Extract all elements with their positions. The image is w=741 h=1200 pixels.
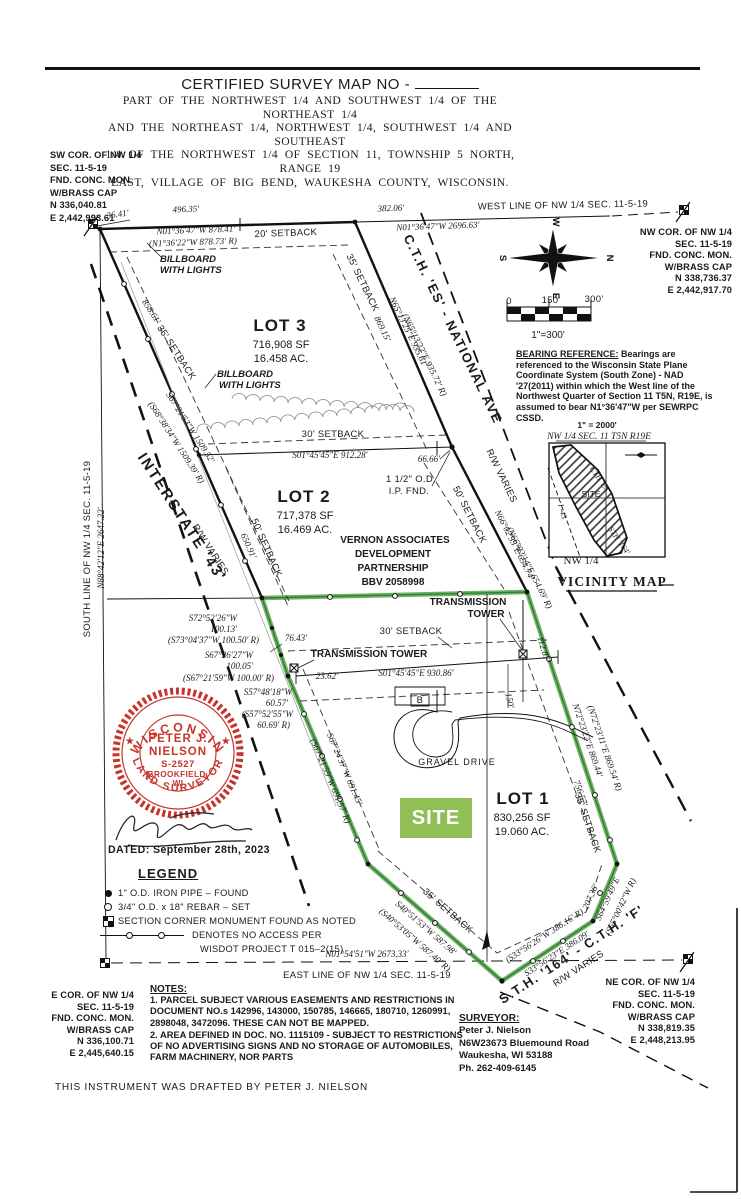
iron-pipe-found-icon bbox=[100, 890, 116, 897]
map-label: (N1°36'22"W 878.73' R) bbox=[149, 235, 237, 248]
corner-line: W/BRASS CAP bbox=[38, 1025, 134, 1037]
map-label: BILLBOARD bbox=[217, 369, 273, 380]
map-label: 717,378 SF bbox=[277, 510, 334, 522]
corner-line: NE COR. OF NW 1/4 bbox=[573, 977, 695, 989]
corner-line: SEC. 11-5-19 bbox=[50, 162, 180, 175]
top-rule bbox=[45, 67, 700, 70]
map-label: PARTNERSHIP bbox=[358, 563, 429, 574]
map-label: NW 1/4 bbox=[564, 555, 599, 567]
east-line-label: EAST LINE OF NW 1/4 SEC. 11-5-19 bbox=[283, 970, 451, 981]
surveyor-signature bbox=[116, 813, 252, 847]
map-label: N01°36'47"W 2696.63' bbox=[395, 220, 481, 233]
map-label: 1 1/2" O.D. bbox=[386, 474, 436, 485]
legend-item: DENOTES NO ACCESS PER bbox=[100, 928, 400, 942]
corner-block-sw: SW COR. OF NW 1/4SEC. 11-5-19FND. CONC. … bbox=[50, 149, 180, 225]
map-label: 150' bbox=[503, 692, 516, 710]
subtitle-line: AND THE NORTHEAST 1/4, NORTHWEST 1/4, SO… bbox=[95, 121, 525, 148]
map-label: 66.66' bbox=[418, 454, 441, 464]
no-access-line-icon bbox=[100, 935, 184, 936]
map-label: 100.13' bbox=[210, 624, 238, 634]
corner-line: SW COR. OF NW 1/4 bbox=[50, 149, 180, 162]
corner-line: E COR. OF NW 1/4 bbox=[38, 990, 134, 1002]
map-label: VERNON ASSOCIATES bbox=[340, 535, 450, 546]
map-label: 100.05' bbox=[226, 661, 254, 671]
map-label: 20' SETBACK bbox=[254, 227, 317, 240]
note-item: 2. AREA DEFINED IN DOC. NO. 1115109 - SU… bbox=[150, 1030, 470, 1064]
note-item: 1. PARCEL SUBJECT VARIOUS EASEMENTS AND … bbox=[150, 995, 470, 1029]
map-label: GRAVEL DRIVE bbox=[418, 757, 496, 767]
corner-line: W/BRASS CAP bbox=[610, 262, 732, 274]
surveyor-block: SURVEYOR: Peter J. NielsonN6W23673 Bluem… bbox=[459, 1013, 619, 1075]
compass-rose-icon bbox=[506, 228, 600, 288]
map-label: 16.469 AC. bbox=[278, 524, 332, 536]
map-label: N01°36'47"W 878.41' bbox=[155, 224, 236, 237]
legend-item-label: 1" O.D. IRON PIPE – FOUND bbox=[118, 888, 249, 898]
seal-city: BROOKFIELD, bbox=[148, 770, 209, 779]
map-label: 382.06' bbox=[376, 203, 405, 214]
map-label: S67°26'27"W bbox=[205, 650, 255, 660]
legend-item-label: WISDOT PROJECT T 015–2(15) bbox=[200, 944, 344, 954]
corner-line: SEC. 11-5-19 bbox=[573, 989, 695, 1001]
scale-tick: 0 bbox=[506, 296, 512, 307]
map-label: 30' SETBACK bbox=[380, 626, 443, 637]
compass-w: W bbox=[550, 218, 561, 227]
seal-star-left: ★ bbox=[125, 736, 134, 747]
surveyor-lines: Peter J. NielsonN6W23673 Bluemound RoadW… bbox=[459, 1025, 619, 1075]
map-label: B bbox=[417, 695, 424, 706]
legend-item-label: SECTION CORNER MONUMENT FOUND AS NOTED bbox=[118, 916, 356, 926]
drafted-line: THIS INSTRUMENT WAS DRAFTED BY PETER J. … bbox=[55, 1082, 368, 1093]
subtitle-line: PART OF THE NORTHWEST 1/4 AND SOUTHWEST … bbox=[95, 94, 525, 121]
map-label: WITH LIGHTS bbox=[160, 265, 222, 276]
map-label: 16.458 AC. bbox=[254, 353, 308, 365]
map-label: (S73°04'37"W 100.50' R) bbox=[168, 635, 259, 645]
site-badge-label: SITE bbox=[412, 807, 460, 830]
west-line-label: WEST LINE OF NW 1/4 SEC. 11-5-19 bbox=[478, 199, 648, 213]
surveyor-line: Peter J. Nielson bbox=[459, 1025, 619, 1037]
dated-line: DATED: September 28th, 2023 bbox=[108, 844, 270, 856]
legend-item: SECTION CORNER MONUMENT FOUND AS NOTED bbox=[100, 914, 400, 928]
corner-line: N 336,100.71 bbox=[38, 1036, 134, 1048]
legend-item: 3/4" O.D. x 18" REBAR – SET bbox=[100, 900, 400, 914]
map-label: 23.62' bbox=[316, 671, 339, 681]
map-label: S57°48'18"W bbox=[244, 687, 294, 697]
map-label: S01°45'45"E 912.28' bbox=[292, 450, 368, 460]
scale-tick: 150' bbox=[542, 295, 561, 306]
notes-title: NOTES: bbox=[150, 984, 187, 995]
corner-line: W/BRASS CAP bbox=[50, 187, 180, 200]
bearing-reference-body: Bearings are referenced to the Wisconsin… bbox=[516, 349, 713, 423]
corner-line: SEC. 11-5-19 bbox=[610, 239, 732, 251]
bearing-reference: BEARING REFERENCE: Bearings are referenc… bbox=[516, 349, 720, 423]
map-label: N88°42'12"E 2647.22' bbox=[96, 506, 106, 589]
map-label: WITH LIGHTS bbox=[219, 380, 281, 391]
surveyor-line: N6W23673 Bluemound Road bbox=[459, 1038, 619, 1050]
map-label: 60.57' bbox=[266, 698, 289, 708]
map-label: DEVELOPMENT bbox=[355, 549, 431, 560]
map-label: BBV 2058998 bbox=[362, 577, 425, 588]
survey-map-page: WISCONSIN LAND SURVEYOR ★ ★ PETER J. NIE… bbox=[0, 0, 741, 1200]
map-label: (S57°52'55"W bbox=[242, 709, 295, 719]
map-label: 76.43' bbox=[285, 633, 308, 643]
csm-number-blank bbox=[415, 76, 479, 89]
map-label: 716,908 SF bbox=[253, 339, 310, 351]
notes: NOTES: 1. PARCEL SUBJECT VARIOUS EASEMEN… bbox=[150, 984, 470, 1064]
corner-block-e: E COR. OF NW 1/4SEC. 11-5-19FND. CONC. M… bbox=[38, 990, 134, 1060]
map-label: S72°52'26"W bbox=[189, 613, 239, 623]
legend: LEGEND 1" O.D. IRON PIPE – FOUND 3/4" O.… bbox=[100, 866, 400, 956]
legend-item-label: DENOTES NO ACCESS PER bbox=[192, 930, 322, 940]
corner-line: E 2,442,917.70 bbox=[610, 285, 732, 297]
lot3-title: LOT 3 bbox=[253, 316, 306, 335]
notes-list: 1. PARCEL SUBJECT VARIOUS EASEMENTS AND … bbox=[150, 995, 470, 1063]
seal-name-line2: NIELSON bbox=[149, 746, 207, 758]
seal-name-line1: PETER J. bbox=[148, 733, 207, 745]
map-label: TOWER bbox=[467, 609, 505, 620]
surveyor-line: Ph. 262-409-6145 bbox=[459, 1063, 619, 1075]
map-label: 30' SETBACK bbox=[302, 429, 365, 440]
map-label: 112.87' bbox=[535, 635, 552, 664]
section-corner-monument-icon bbox=[100, 916, 116, 927]
map-label: 858.61' bbox=[140, 297, 164, 326]
page-title: CERTIFIED SURVEY MAP NO - bbox=[110, 76, 550, 93]
legend-item-label: 3/4" O.D. x 18" REBAR – SET bbox=[118, 902, 251, 912]
legend-item: 1" O.D. IRON PIPE – FOUND bbox=[100, 886, 400, 900]
map-label: 50' SETBACK bbox=[450, 484, 488, 545]
map-label: SOUTH LINE OF NW 1/4 SEC. 11-5-19 bbox=[82, 461, 93, 638]
bearing-reference-heading: BEARING REFERENCE: bbox=[516, 349, 619, 359]
corner-line: E 2,442,993.61 bbox=[50, 212, 180, 225]
corner-line: E 2,445,640.15 bbox=[38, 1048, 134, 1060]
legend-item: WISDOT PROJECT T 015–2(15) bbox=[100, 942, 400, 956]
surveyor-line: Waukesha, WI 53188 bbox=[459, 1050, 619, 1062]
map-label: TRANSMISSION TOWER bbox=[311, 649, 428, 660]
map-label: I.P. FND. bbox=[389, 486, 430, 497]
surveyor-seal: WISCONSIN LAND SURVEYOR ★ ★ PETER J. NIE… bbox=[116, 691, 240, 815]
seal-number: S-2527 bbox=[161, 759, 195, 770]
map-label: 869.15' bbox=[372, 314, 393, 343]
site-badge: SITE bbox=[400, 798, 472, 838]
map-label: 35' SETBACK bbox=[344, 252, 382, 313]
corner-block-nw: NW COR. OF NW 1/4SEC. 11-5-19FND. CONC. … bbox=[610, 227, 732, 297]
corner-line: N 338,736.37 bbox=[610, 273, 732, 285]
seal-state: WI bbox=[173, 779, 184, 788]
map-label: S01°45'45"E 930.86' bbox=[378, 668, 454, 678]
corner-line: FND. CONC. MON. bbox=[573, 1000, 695, 1012]
map-label: TRANSMISSION bbox=[430, 597, 507, 608]
scale-ratio: 1"=300' bbox=[531, 330, 565, 341]
page-title-text: CERTIFIED SURVEY MAP NO - bbox=[181, 76, 410, 93]
map-label: 830,256 SF bbox=[494, 812, 551, 824]
corner-line: FND. CONC. MON. bbox=[38, 1013, 134, 1025]
map-label: 35' SETBACK bbox=[154, 323, 198, 382]
lot1-title: LOT 1 bbox=[496, 789, 549, 808]
map-label: 60.69' R) bbox=[257, 720, 290, 730]
seal-star-right: ★ bbox=[221, 736, 230, 747]
page-border bbox=[690, 908, 737, 1192]
vicinity-section: NW 1/4 SEC. 11 T5N R19E bbox=[546, 432, 651, 442]
tree-line bbox=[197, 393, 414, 431]
corner-line: SEC. 11-5-19 bbox=[38, 1002, 134, 1014]
corner-line: FND. CONC. MON. bbox=[610, 250, 732, 262]
map-label: (S67°21'59"W 100.00' R) bbox=[183, 673, 274, 683]
lot2-title: LOT 2 bbox=[277, 487, 330, 506]
corner-line: FND. CONC. MON. bbox=[50, 174, 180, 187]
map-label: BILLBOARD bbox=[160, 254, 216, 265]
scale-tick: 300' bbox=[585, 294, 604, 305]
corner-line: NW COR. OF NW 1/4 bbox=[610, 227, 732, 239]
compass-s: S bbox=[497, 255, 508, 261]
corner-line: N 336,040.81 bbox=[50, 199, 180, 212]
vicinity-map-title: VICINITY MAP bbox=[557, 574, 666, 589]
legend-title: LEGEND bbox=[138, 866, 400, 881]
rebar-set-icon bbox=[100, 903, 116, 911]
map-label: 19.060 AC. bbox=[495, 826, 549, 838]
surveyor-title: SURVEYOR: bbox=[459, 1013, 519, 1024]
map-label: SITE bbox=[582, 489, 601, 499]
